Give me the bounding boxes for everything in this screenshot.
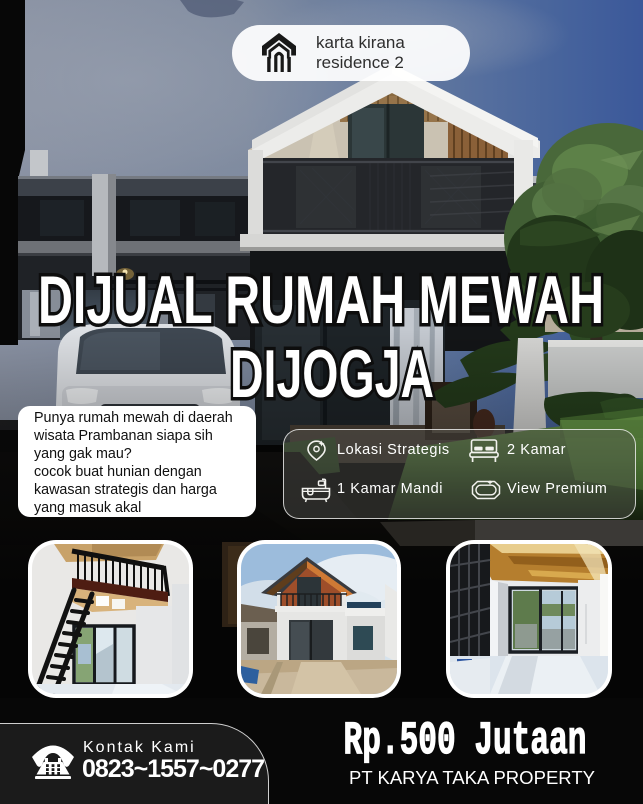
svg-text:Rp.500 Jutaan: Rp.500 Jutaan	[344, 715, 587, 767]
svg-text:DIJOGJA: DIJOGJA	[230, 336, 434, 410]
svg-text:DIJUAL RUMAH MEWAH: DIJUAL RUMAH MEWAH	[38, 262, 604, 338]
svg-text:PT KARYA TAKA PROPERTY: PT KARYA TAKA PROPERTY	[349, 767, 595, 788]
